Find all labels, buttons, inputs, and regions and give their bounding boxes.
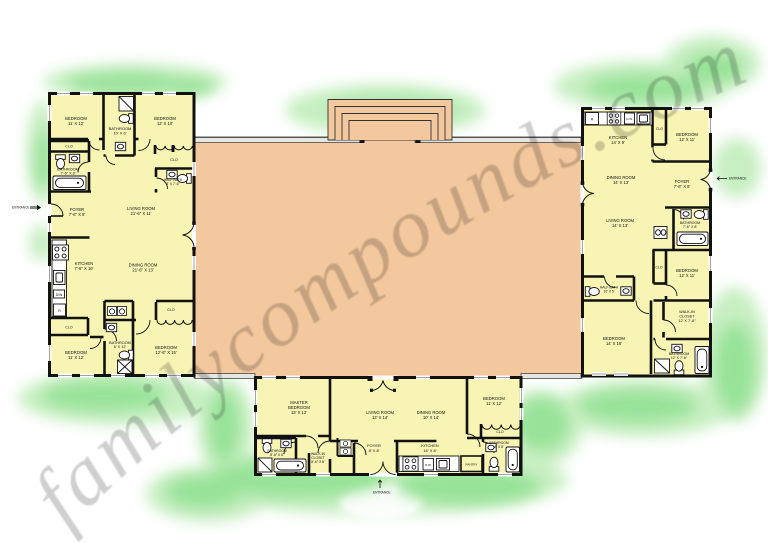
- svg-text:12' X 11': 12' X 11': [679, 273, 695, 278]
- svg-text:PANTRY: PANTRY: [466, 463, 478, 467]
- svg-text:WALK-IN: WALK-IN: [679, 310, 695, 314]
- svg-text:8' X 8': 8' X 8': [369, 448, 380, 453]
- svg-text:10' X 5': 10' X 5': [603, 290, 614, 294]
- svg-text:D.W.: D.W.: [425, 463, 432, 467]
- svg-text:7'-6" X 8': 7'-6" X 8': [69, 212, 86, 217]
- svg-text:CLO: CLO: [656, 266, 663, 270]
- svg-text:CLO: CLO: [65, 326, 73, 330]
- svg-text:D/W: D/W: [56, 293, 63, 297]
- svg-text:21'-6" X 13': 21'-6" X 13': [132, 268, 153, 273]
- svg-text:6' X 12': 6' X 12': [114, 345, 127, 349]
- svg-text:13' X 14': 13' X 14': [372, 415, 388, 420]
- svg-text:11' X 12': 11' X 12': [68, 355, 84, 360]
- svg-text:ENTRANCE: ENTRANCE: [729, 177, 747, 181]
- svg-text:12' X 7'-6": 12' X 7'-6": [678, 319, 696, 323]
- svg-text:14' X 13': 14' X 13': [612, 223, 628, 228]
- svg-text:8'-6" X 8': 8'-6" X 8': [311, 460, 325, 464]
- svg-text:10' X 6': 10' X 6': [113, 131, 126, 136]
- svg-text:14' X 16': 14' X 16': [606, 341, 622, 346]
- svg-text:CLO: CLO: [167, 308, 175, 312]
- svg-text:CLO: CLO: [170, 158, 178, 162]
- svg-text:7'-6" X 8': 7'-6" X 8': [60, 172, 75, 176]
- svg-text:14' X 13': 14' X 13': [613, 180, 629, 185]
- svg-text:CLOSET: CLOSET: [679, 315, 695, 319]
- svg-text:ENTRANCE: ENTRANCE: [373, 491, 391, 495]
- svg-text:CLO: CLO: [496, 430, 504, 434]
- svg-text:12' X 10': 12' X 10': [157, 121, 173, 126]
- svg-text:11' X 12': 11' X 12': [486, 401, 502, 406]
- svg-text:7'-6" X 16': 7'-6" X 16': [75, 266, 94, 271]
- svg-text:7'-6" X 8': 7'-6" X 8': [674, 184, 691, 189]
- svg-text:7'-6" X 8': 7'-6" X 8': [683, 225, 698, 229]
- svg-text:21'-6" X 11': 21'-6" X 11': [131, 211, 152, 216]
- svg-text:13' X 12': 13' X 12': [291, 410, 307, 415]
- svg-text:3' X 7'-6": 3' X 7'-6": [166, 182, 180, 186]
- svg-text:CLO: CLO: [65, 145, 73, 149]
- svg-text:ENTRANCE: ENTRANCE: [12, 206, 30, 210]
- svg-text:8'-6" X 8': 8'-6" X 8': [270, 453, 284, 457]
- svg-text:10' X 14': 10' X 14': [423, 415, 439, 420]
- svg-text:12' X 7'-6": 12' X 7'-6": [671, 356, 688, 360]
- svg-text:11' X 12': 11' X 12': [68, 121, 84, 126]
- svg-text:16' X 8': 16' X 8': [423, 448, 436, 453]
- svg-text:8' X 8': 8' X 8': [494, 445, 504, 449]
- svg-text:12' X 11': 12' X 11': [679, 137, 695, 142]
- svg-text:R: R: [58, 309, 61, 313]
